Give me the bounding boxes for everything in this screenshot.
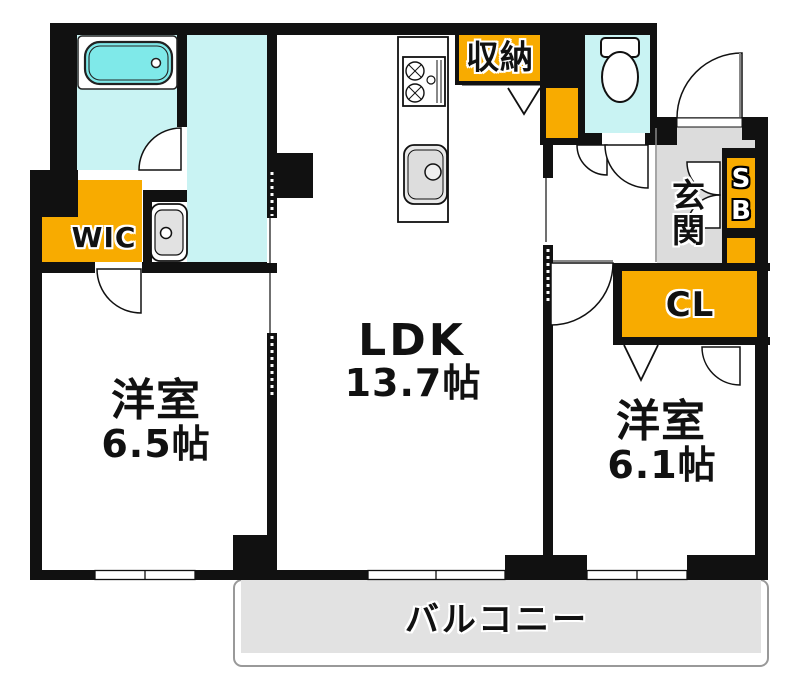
gas-stove-icon: [403, 57, 445, 106]
wall-right: [755, 117, 768, 580]
balcony-label: バルコニー: [405, 603, 589, 637]
wic-floor-upper: [78, 180, 142, 217]
shoebox-lower-box: [727, 238, 755, 263]
wall-pillar-bottom-left: [233, 535, 277, 580]
entrance-label: 玄関: [670, 178, 703, 248]
hall-slide-opening: [543, 178, 553, 242]
wall-toilet-bottom-right: [645, 133, 657, 145]
closet-swing-door: [702, 347, 740, 385]
wall-left-step: [30, 170, 78, 217]
floorplan-canvas: LDK 13.7帖 洋室 6.5帖 洋室 6.1帖 WIC 収納 玄関 SB C…: [0, 0, 800, 700]
west-bedroom-label: 洋室: [111, 379, 201, 423]
wall-hall-west-a: [543, 137, 553, 178]
windows: [95, 570, 687, 580]
hallway-door: [605, 145, 648, 188]
kitchen-sink-icon: [404, 145, 447, 204]
toilet-door: [577, 145, 607, 175]
ldk-label: LDK: [358, 319, 466, 363]
washbasin-icon: [151, 204, 187, 261]
wall-wic-bottom: [30, 262, 95, 273]
wic-door: [97, 269, 141, 313]
wall-pillar-ldk: [277, 153, 313, 198]
bathtub-icon: [78, 36, 177, 89]
linen-storage: [546, 88, 578, 138]
ldk-size-label: 13.7帖: [345, 364, 482, 402]
wall-bottom-a: [30, 570, 95, 580]
wall-closet-west: [613, 263, 622, 345]
wall-hall-west-b: [543, 307, 553, 565]
west-bedroom-size-label: 6.5帖: [101, 425, 210, 463]
storage-label: 収納: [466, 41, 534, 74]
closet-folding-door: [624, 345, 658, 380]
east-bedroom-size-label: 6.1帖: [607, 446, 716, 484]
west-room-slide-opening: [267, 273, 277, 333]
closet-label: CL: [666, 288, 715, 322]
east-bedroom-label: 洋室: [616, 400, 706, 444]
wall-entrance-right: [742, 117, 768, 140]
front-door: [677, 53, 742, 118]
wall-entrance-left: [650, 25, 657, 145]
shoebox-label: SB: [728, 164, 754, 228]
wall-entrance-sill: [657, 117, 677, 145]
storage-folding-door: [508, 88, 540, 114]
wall-washroom-east: [267, 35, 277, 170]
wall-bath-washroom: [177, 35, 187, 127]
wall-left-upper: [50, 23, 77, 170]
wall-bottom-b: [195, 570, 368, 580]
front-door-threshold: [677, 118, 742, 127]
wall-closet-top: [613, 263, 770, 271]
toilet-icon: [601, 38, 639, 102]
washroom-floor: [187, 35, 267, 263]
wic-label: WIC: [72, 224, 137, 252]
washroom-slide-opening: [267, 218, 277, 263]
east-bedroom-door: [551, 263, 613, 325]
wall-below-basin: [142, 262, 277, 273]
wall-closet-bottom: [613, 337, 770, 345]
wall-toilet-bottom-stub: [585, 133, 602, 145]
